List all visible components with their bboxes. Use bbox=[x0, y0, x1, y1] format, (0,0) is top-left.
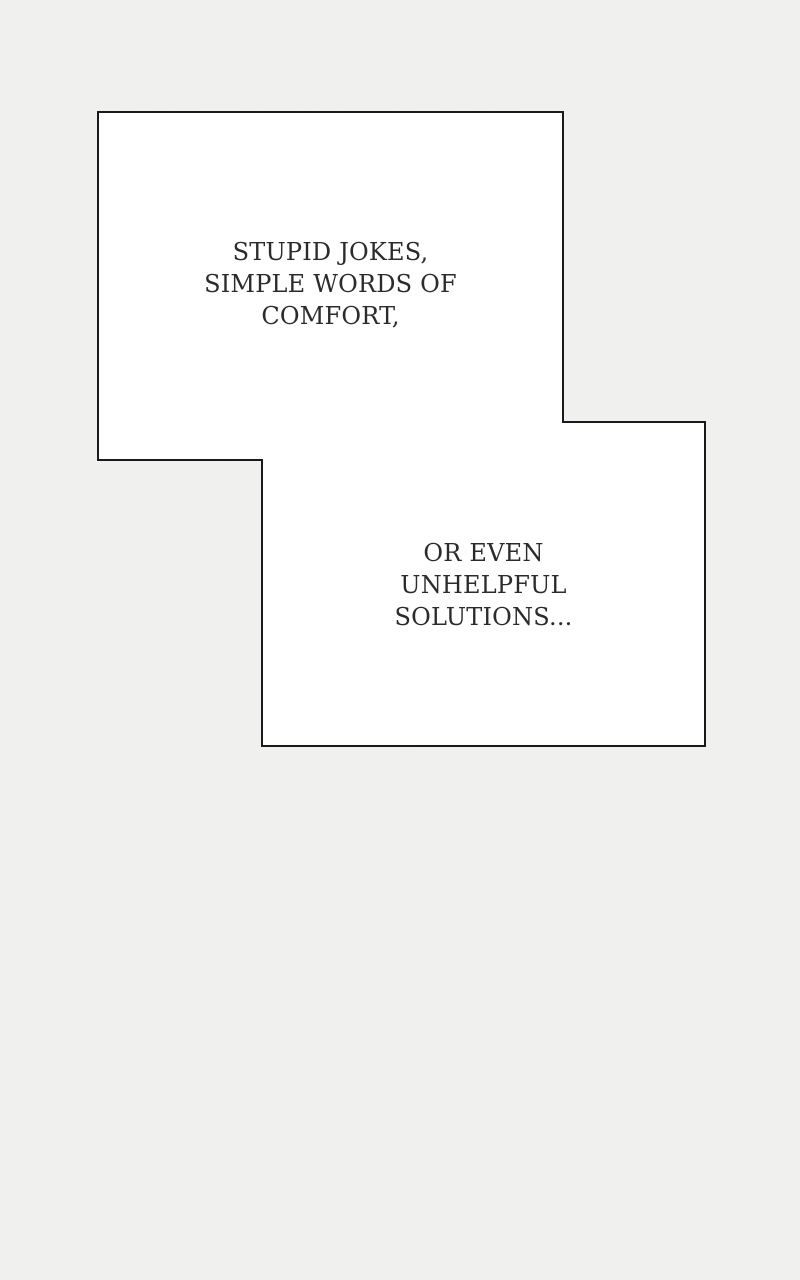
speech-line: SIMPLE WORDS OF bbox=[98, 268, 563, 300]
speech-panel-outline bbox=[98, 112, 705, 746]
speech-line: OR EVEN bbox=[262, 537, 705, 569]
speech-line: SOLUTIONS... bbox=[262, 601, 705, 633]
speech-line: UNHELPFUL bbox=[262, 569, 705, 601]
speech-line: COMFORT, bbox=[98, 300, 563, 332]
speech-line: STUPID JOKES, bbox=[98, 236, 563, 268]
speech-text-1: STUPID JOKES, SIMPLE WORDS OF COMFORT, bbox=[98, 236, 563, 332]
comic-page: STUPID JOKES, SIMPLE WORDS OF COMFORT, O… bbox=[0, 0, 800, 1280]
speech-panels bbox=[0, 0, 800, 1280]
speech-text-2: OR EVEN UNHELPFUL SOLUTIONS... bbox=[262, 537, 705, 633]
